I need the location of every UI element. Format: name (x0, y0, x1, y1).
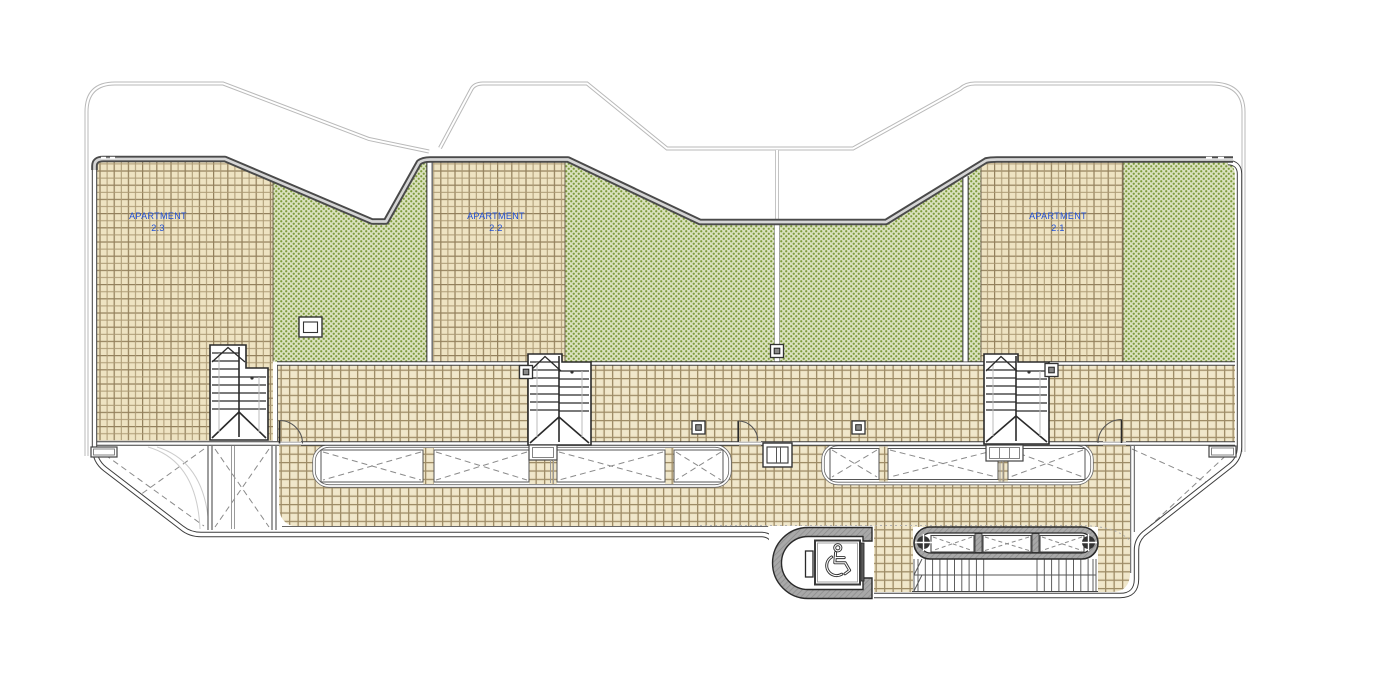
svg-text:APARTMENT: APARTMENT (467, 211, 525, 221)
svg-text:APARTMENT: APARTMENT (129, 211, 187, 221)
svg-text:APARTMENT: APARTMENT (1029, 211, 1087, 221)
svg-text:2.1: 2.1 (1051, 223, 1065, 233)
svg-text:2.3: 2.3 (151, 223, 165, 233)
svg-text:2.2: 2.2 (489, 223, 503, 233)
